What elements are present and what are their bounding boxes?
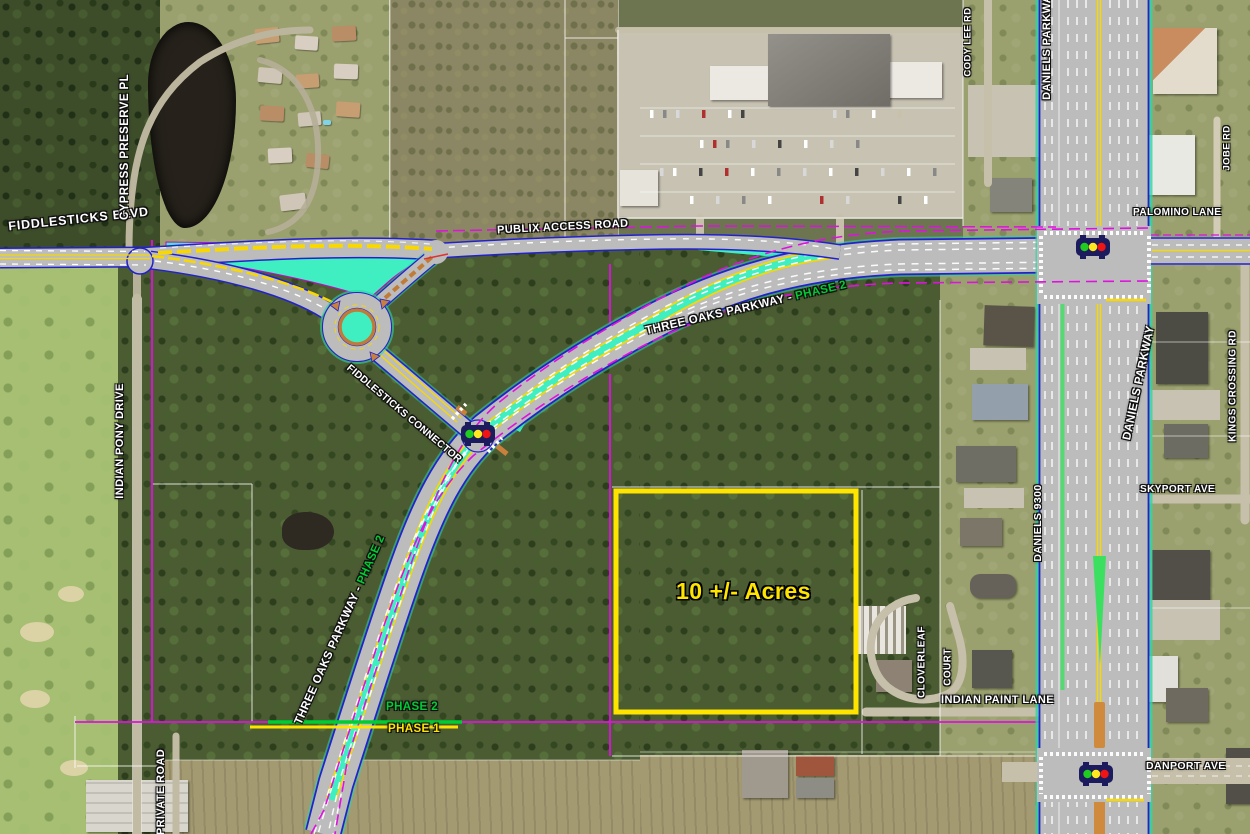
roundabout [321,291,393,363]
road-label-cypress-preserve-pl: CYPRESS PRESERVE PL [119,74,131,220]
traffic-signal-icon [1077,761,1115,792]
parking-cars [640,108,955,204]
palomino-arm [1151,235,1250,265]
road-label-court: COURT [943,648,954,686]
road-label-danport-ave: DANPORT AVE [1146,760,1226,772]
parcel-acreage-label: 10 +/- Acres [676,578,811,605]
road-label-palomino-lane: PALOMINO LANE [1133,207,1221,218]
road-label-indian-pony-drive: INDIAN PONY DRIVE [114,383,126,498]
road-label-daniels-parkway-top: DANIELS PARKWAY [1041,0,1053,100]
traffic-signal-icon [1074,234,1112,265]
three-oaks-parkway-corridor [314,241,1148,834]
road-label-jobe-rd: JOBE RD [1222,125,1233,170]
road-label-private-road: PRIVATE ROAD [155,749,167,834]
traffic-signal-icon [459,421,497,452]
phase1-label: PHASE 1 [388,723,440,735]
road-label-cloverleaf: CLOVERLEAF [917,626,928,698]
parcel-lines-magenta [75,240,1140,756]
road-label-skyport-ave: SKYPORT AVE [1140,484,1215,495]
road-overlay [0,0,1250,834]
road-label-indian-paint-lane: INDIAN PAINT LANE [941,694,1054,706]
aerial-site-map: FIDDLESTICKS BLVD CYPRESS PRESERVE PL PU… [0,0,1250,834]
road-label-kings-crossing-rd: KINGS CROSSING RD [1228,330,1239,442]
road-label-daniels-9300: DANIELS 9300 [1032,484,1044,561]
phase2-label: PHASE 2 [386,701,438,713]
road-label-cody-lee-rd: CODY LEE RD [963,7,974,76]
publix-access-road [433,239,840,252]
